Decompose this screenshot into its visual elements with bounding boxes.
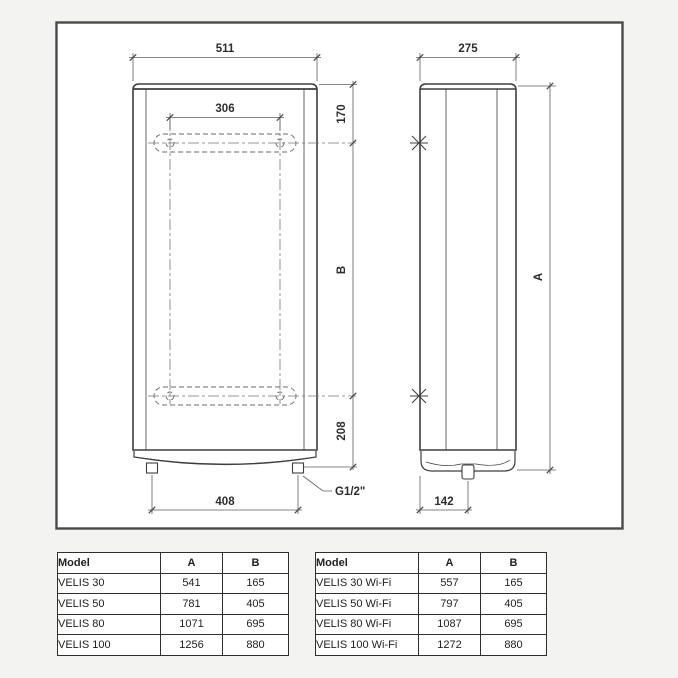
value-b: 880 (223, 635, 289, 656)
header-a: A (419, 553, 481, 574)
value-a: 781 (161, 594, 223, 615)
pipe-connection-label: G1/2" (335, 486, 365, 498)
header-model: Model (316, 553, 419, 574)
model-name: VELIS 100 Wi-Fi (316, 635, 419, 656)
value-b: 165 (223, 573, 289, 594)
model-name: VELIS 80 Wi-Fi (316, 614, 419, 635)
table-row: VELIS 30 541 165 (58, 573, 289, 594)
dim-top-to-bracket-label: 170 (336, 104, 348, 123)
model-name: VELIS 100 (58, 635, 161, 656)
table-header-row: Model A B (58, 553, 289, 574)
page: { "diagram": { "front_view": { "dim_over… (0, 0, 678, 678)
value-a: 797 (419, 594, 481, 615)
header-model: Model (58, 553, 161, 574)
front-left-pipe (147, 463, 158, 473)
value-b: 405 (223, 594, 289, 615)
value-b: 405 (481, 594, 547, 615)
table-row: VELIS 80 Wi-Fi 1087 695 (316, 614, 547, 635)
table-standard-models: Model A B VELIS 30 541 165 VELIS 50 781 … (57, 552, 289, 656)
value-a: 1256 (161, 635, 223, 656)
value-a: 541 (161, 573, 223, 594)
front-right-pipe (293, 463, 304, 473)
dim-pipe-offset-label: 142 (434, 496, 453, 508)
header-a: A (161, 553, 223, 574)
table-row: VELIS 100 1256 880 (58, 635, 289, 656)
table-row: VELIS 50 Wi-Fi 797 405 (316, 594, 547, 615)
value-b: 695 (481, 614, 547, 635)
dim-pipe-spacing-label: 408 (215, 496, 235, 508)
side-body-outline (420, 84, 516, 450)
value-a: 1272 (419, 635, 481, 656)
table-row: VELIS 50 781 405 (58, 594, 289, 615)
value-b: 695 (223, 614, 289, 635)
value-b: 165 (481, 573, 547, 594)
model-name: VELIS 50 Wi-Fi (316, 594, 419, 615)
dim-overall-height-label: A (533, 273, 545, 281)
table-row: VELIS 30 Wi-Fi 557 165 (316, 573, 547, 594)
model-name: VELIS 50 (58, 594, 161, 615)
front-body-outline (133, 84, 317, 450)
header-b: B (223, 553, 289, 574)
model-name: VELIS 30 (58, 573, 161, 594)
model-name: VELIS 80 (58, 614, 161, 635)
dim-overall-width-label: 511 (216, 43, 235, 55)
dim-bracket-span-label: B (336, 266, 348, 274)
dim-depth-label: 275 (458, 43, 478, 55)
value-a: 1071 (161, 614, 223, 635)
dim-bracket-to-bottom-label: 208 (336, 421, 348, 441)
header-b: B (481, 553, 547, 574)
table-header-row: Model A B (316, 553, 547, 574)
value-a: 557 (419, 573, 481, 594)
value-a: 1087 (419, 614, 481, 635)
table-row: VELIS 80 1071 695 (58, 614, 289, 635)
dim-bracket-width-label: 306 (215, 103, 234, 115)
technical-drawing: 511 306 170 B 208 408 (0, 0, 678, 545)
model-name: VELIS 30 Wi-Fi (316, 573, 419, 594)
table-wifi-models: Model A B VELIS 30 Wi-Fi 557 165 VELIS 5… (315, 552, 547, 656)
table-row: VELIS 100 Wi-Fi 1272 880 (316, 635, 547, 656)
value-b: 880 (481, 635, 547, 656)
side-pipe (462, 465, 474, 479)
